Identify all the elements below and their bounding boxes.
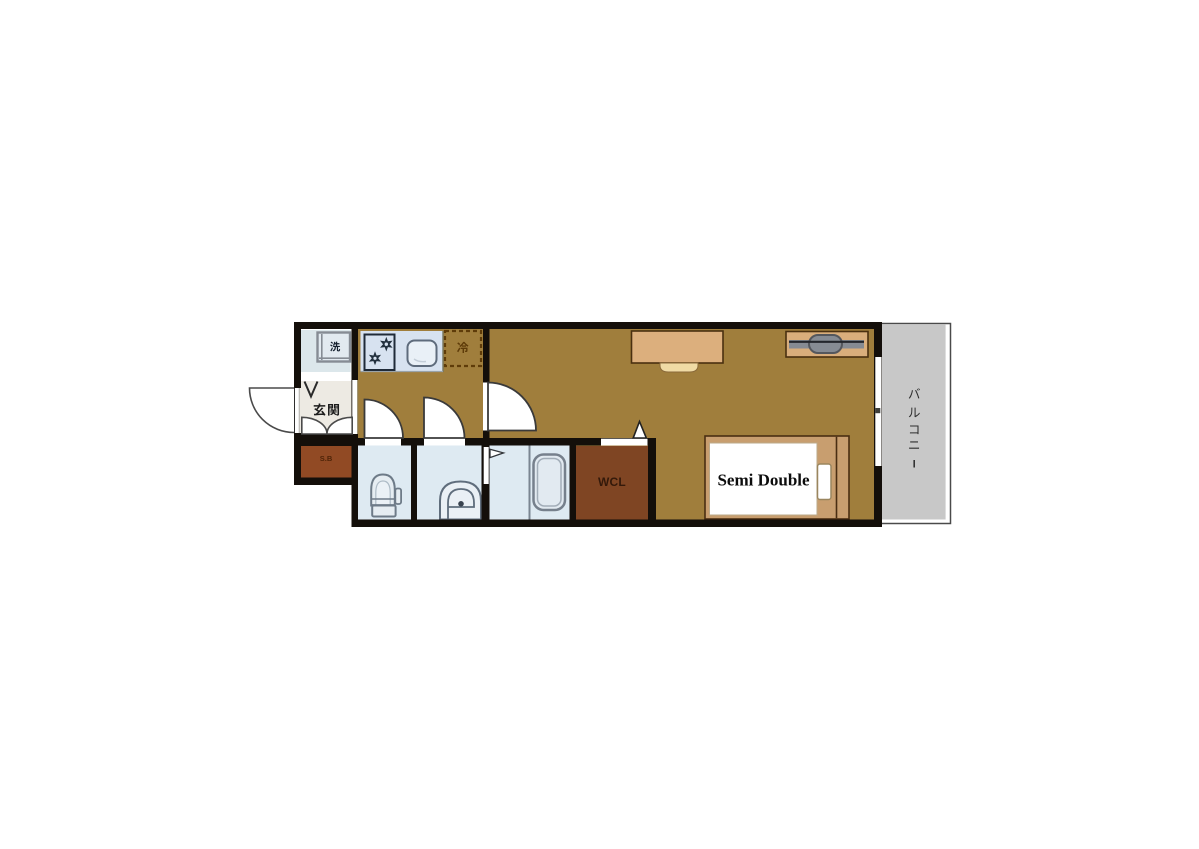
svg-text:S.B: S.B [320,454,333,463]
svg-text:Semi Double: Semi Double [717,471,810,490]
svg-text:WCL: WCL [598,475,626,489]
